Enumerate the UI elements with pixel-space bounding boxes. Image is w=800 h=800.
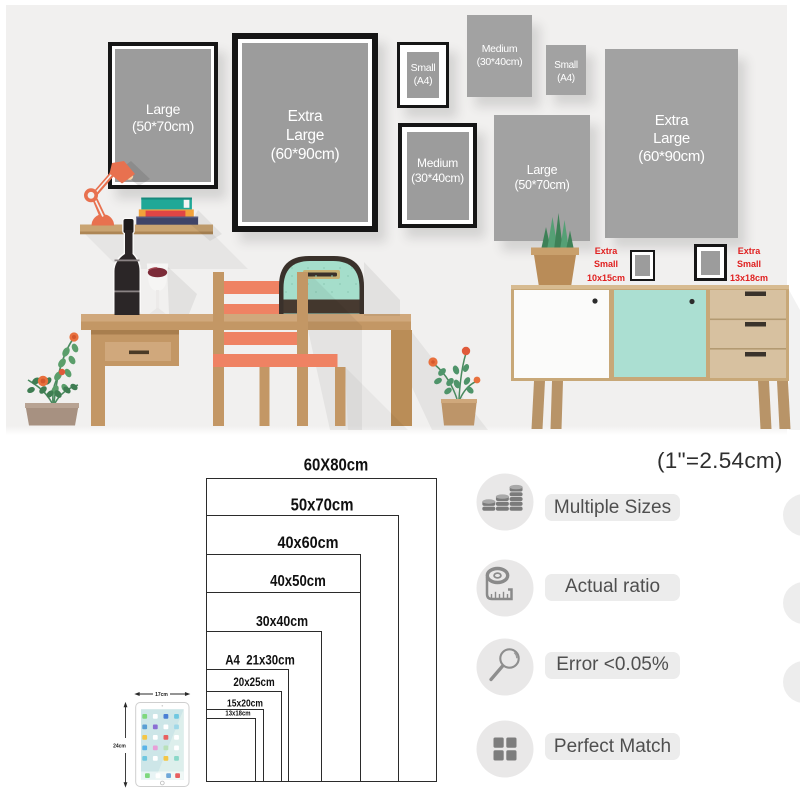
svg-text:24cm: 24cm [113,743,126,749]
svg-text:17cm: 17cm [155,692,168,698]
